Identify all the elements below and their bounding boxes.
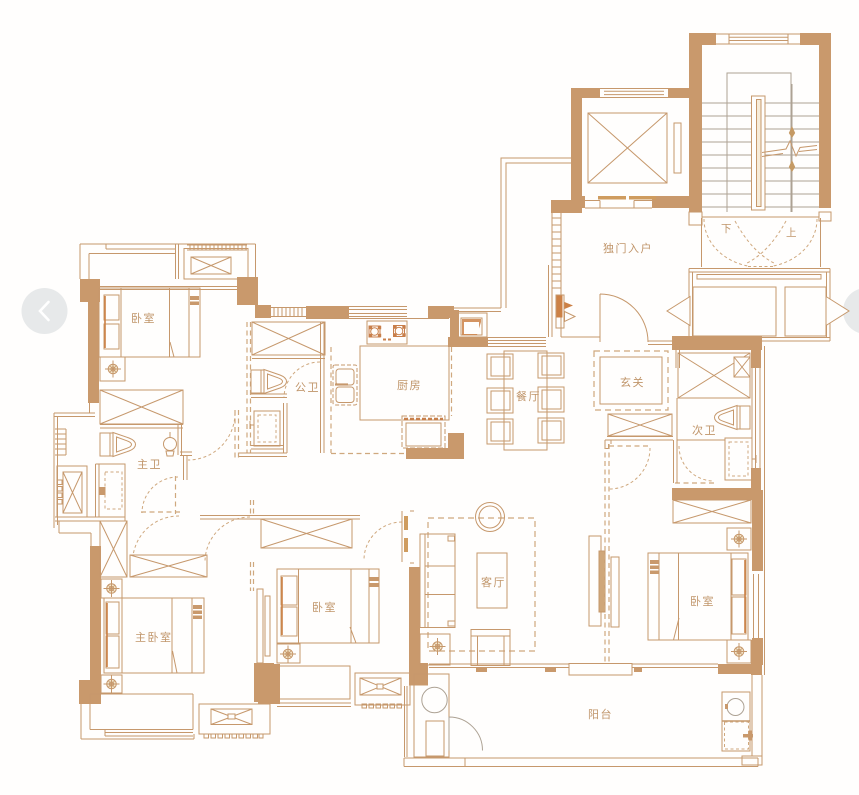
svg-text:厨房: 厨房 [397,379,422,392]
svg-text:公卫: 公卫 [295,382,320,394]
svg-text:上: 上 [786,227,797,239]
svg-text:客厅: 客厅 [481,575,506,589]
svg-text:下: 下 [721,223,732,235]
svg-text:阳台: 阳台 [588,707,613,721]
svg-text:卧室: 卧室 [690,594,715,608]
svg-text:独门入户: 独门入户 [603,241,653,255]
svg-text:餐厅: 餐厅 [516,389,541,403]
svg-text:玄关: 玄关 [620,375,645,389]
svg-text:卧室: 卧室 [312,600,337,614]
svg-text:主卫: 主卫 [137,458,162,471]
svg-text:主卧室: 主卧室 [135,630,173,644]
svg-text:次卫: 次卫 [692,423,717,437]
svg-text:卧室: 卧室 [131,311,156,325]
